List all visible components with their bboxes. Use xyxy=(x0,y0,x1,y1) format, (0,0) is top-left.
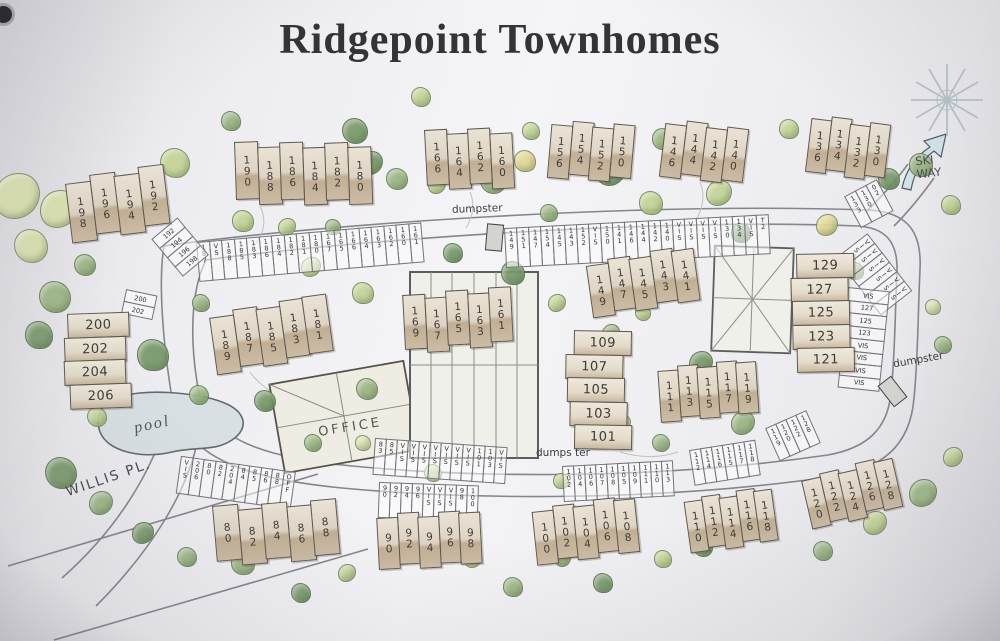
unit-number: 129 xyxy=(812,258,839,273)
unit-number: 204 xyxy=(82,364,109,380)
unit-number: 111 xyxy=(663,379,676,413)
unit-125: 125 xyxy=(792,300,850,326)
stall-label: 123 xyxy=(858,329,871,338)
tree xyxy=(522,122,540,140)
stall-label: 107 xyxy=(598,465,606,486)
stall-label: 140 xyxy=(663,220,671,241)
unit-number: 84 xyxy=(270,519,282,542)
dumpster xyxy=(485,223,504,251)
stall-label: 188 xyxy=(224,240,232,261)
ski-way-label: SKI WAY xyxy=(915,153,942,182)
stall-label: VIS xyxy=(409,441,417,462)
unit-123: 123 xyxy=(792,323,850,349)
stall-label: 103 xyxy=(486,447,494,468)
unit-number: 103 xyxy=(585,406,612,421)
tree xyxy=(14,229,48,263)
unit-121: 121 xyxy=(797,347,855,373)
stall-label: 165 xyxy=(337,230,345,251)
unit-number: 94 xyxy=(424,531,436,554)
stall-label: OFF xyxy=(283,472,292,493)
unit-number: 117 xyxy=(721,370,734,404)
unit-number: 147 xyxy=(614,267,629,301)
unit-number: 185 xyxy=(264,319,279,353)
stall-label: 85 xyxy=(250,467,258,482)
stall-label: 92 xyxy=(392,483,399,497)
unit-number: 114 xyxy=(724,505,739,539)
stall-label: 202 xyxy=(131,305,145,315)
unit-number: 196 xyxy=(98,186,112,220)
tree xyxy=(291,583,311,603)
stall-label: 125 xyxy=(859,316,872,325)
tree xyxy=(25,321,53,349)
unit-number: 156 xyxy=(553,135,566,169)
unit-119: 119 xyxy=(735,361,760,414)
unit-number: 143 xyxy=(656,259,671,293)
dumpster-label-top: dumpster xyxy=(452,202,503,216)
stall-label: 142 xyxy=(651,221,659,242)
unit-number: 106 xyxy=(599,508,613,542)
unit-number: 108 xyxy=(620,509,634,543)
stall-label: 182 xyxy=(287,235,295,256)
parking-stall-T2: T2 xyxy=(756,214,771,255)
stall-label: 143 xyxy=(567,225,575,246)
stall-label: 184 xyxy=(274,236,282,257)
unit-number: 107 xyxy=(581,359,608,374)
stall-label: VIS xyxy=(863,291,874,300)
stall-label: VIS xyxy=(398,441,406,462)
snowflake-doodle xyxy=(911,64,983,136)
unit-number: 86 xyxy=(295,522,307,545)
unit-number: 110 xyxy=(689,509,704,543)
unit-number: 165 xyxy=(452,301,464,335)
unit-number: 181 xyxy=(310,307,325,341)
stall-label: 164 xyxy=(361,228,369,249)
unit-number: 132 xyxy=(850,135,864,169)
stall-label: 151 xyxy=(519,228,527,249)
tree xyxy=(189,385,209,405)
stall-label: 82 xyxy=(216,462,224,477)
stall-label: VIS xyxy=(436,485,443,506)
building-109: 109107105103101 xyxy=(564,330,624,448)
stall-label: VIS xyxy=(464,445,472,466)
unit-number: 98 xyxy=(465,527,477,550)
stall-label: 85 xyxy=(388,440,395,454)
stall-label: 186 xyxy=(262,237,270,258)
stall-label: 163 xyxy=(374,227,382,248)
building-110: 110112114116118 xyxy=(683,486,777,550)
stall-label: 84 xyxy=(239,465,247,480)
stall-label: 162 xyxy=(386,226,394,247)
tree xyxy=(514,150,536,172)
unit-number: 169 xyxy=(409,305,421,339)
unit-number: 102 xyxy=(558,515,572,549)
parking-stall-VIS: VIS xyxy=(493,446,508,484)
unit-number: 192 xyxy=(146,178,160,212)
unit-number: 183 xyxy=(287,311,302,345)
stall-label: 141 xyxy=(615,223,623,244)
tree xyxy=(232,210,254,232)
tree xyxy=(39,281,71,313)
stall-label: 145 xyxy=(555,226,563,247)
unit-number: 116 xyxy=(741,498,756,532)
stall-label: VIS xyxy=(447,485,454,506)
building-166: 166164162160 xyxy=(424,125,513,185)
stall-label: 96 xyxy=(414,484,421,498)
stall-label: 144 xyxy=(639,222,647,243)
unit-number: 82 xyxy=(246,525,258,548)
unit-number: 119 xyxy=(741,371,754,405)
tree xyxy=(221,111,241,131)
stall-label: 127 xyxy=(860,304,873,313)
tree xyxy=(925,299,941,315)
unit-number: 130 xyxy=(870,133,884,167)
stall-label: 83 xyxy=(377,439,384,453)
stall-label: 105 xyxy=(620,464,628,485)
unit-number: 167 xyxy=(431,308,443,342)
unit-88: 88 xyxy=(310,498,341,556)
unit-number: 121 xyxy=(813,352,840,367)
unit-105: 105 xyxy=(567,377,625,403)
unit-number: 184 xyxy=(309,160,321,193)
stall-label: 106 xyxy=(587,465,595,486)
stall-label: 167 xyxy=(324,231,332,252)
unit-number: 162 xyxy=(474,139,486,173)
stall-label: VS xyxy=(212,241,220,256)
unit-number: 190 xyxy=(241,154,253,187)
stall-label: 111 xyxy=(642,463,650,484)
tree xyxy=(779,119,799,139)
unit-number: 166 xyxy=(431,141,443,175)
unit-number: 150 xyxy=(615,134,628,168)
unit-150: 150 xyxy=(609,123,636,179)
stall-label: 130 xyxy=(723,217,731,238)
tree xyxy=(160,148,190,178)
unit-number: 113 xyxy=(682,374,695,408)
stall-label: 104 xyxy=(576,466,584,487)
tree xyxy=(941,195,961,215)
building-190: 190188186184182180 xyxy=(234,137,371,200)
unit-number: 146 xyxy=(666,134,680,168)
tree xyxy=(356,378,378,400)
stall-label: 134 xyxy=(735,217,743,238)
unit-number: 145 xyxy=(636,267,651,301)
stall-label: VIS xyxy=(855,366,866,375)
unit-number: 144 xyxy=(687,132,701,166)
stall-label: VIS xyxy=(675,220,683,241)
unit-number: 105 xyxy=(583,382,610,397)
unit-number: 90 xyxy=(383,532,395,555)
unit-98: 98 xyxy=(458,512,483,565)
unit-number: 189 xyxy=(218,328,233,362)
stall-label: 100 xyxy=(469,486,476,507)
unit-103: 103 xyxy=(569,401,627,427)
unit-number: 152 xyxy=(594,138,607,172)
unit-206: 206 xyxy=(69,382,132,409)
stall-label: VIS xyxy=(856,354,867,363)
unit-number: 141 xyxy=(678,259,693,293)
unit-160: 160 xyxy=(489,132,515,189)
unit-number: 160 xyxy=(496,144,508,178)
tree xyxy=(254,390,276,412)
stall-label: 80 xyxy=(205,460,213,475)
stall-label: VIS xyxy=(431,443,439,464)
building-136: 136134132130 xyxy=(805,114,889,177)
unit-161: 161 xyxy=(488,286,514,342)
unit-number: 125 xyxy=(808,305,835,320)
unit-number: 109 xyxy=(589,335,616,350)
tree xyxy=(540,204,558,222)
stall-label: 86 xyxy=(262,468,270,483)
stall-label: 98 xyxy=(458,486,465,500)
stall-label: 150 xyxy=(603,224,611,245)
stall-label: VIS xyxy=(853,378,864,387)
stall-label: 113 xyxy=(664,461,672,482)
stall-label: T2 xyxy=(759,215,766,229)
tree xyxy=(411,87,431,107)
tennis-court-right xyxy=(711,246,794,354)
unit-number: 92 xyxy=(403,527,415,550)
stall-label: 152 xyxy=(579,225,587,246)
unit-number: 112 xyxy=(706,504,721,538)
tree xyxy=(593,573,613,593)
stall-label: VIS xyxy=(747,216,755,237)
building-200: 200202204206 xyxy=(62,312,127,408)
stall-label: 161 xyxy=(411,224,419,245)
building-100: 100102104106108 xyxy=(531,495,639,559)
unit-number: 115 xyxy=(702,376,715,410)
building-198: 198196194192 xyxy=(64,164,169,235)
unit-number: 118 xyxy=(758,499,773,533)
stall-label: 146 xyxy=(627,222,635,243)
stall-label: 102 xyxy=(565,467,573,488)
building-146: 146144142140 xyxy=(659,118,747,182)
tree xyxy=(87,407,107,427)
site-map: 187VS18818518318618418218118016716516616… xyxy=(0,0,1000,641)
unit-number: 206 xyxy=(87,388,114,404)
unit-127: 127 xyxy=(790,276,848,302)
tree xyxy=(137,339,169,371)
stall-label: 109 xyxy=(631,463,639,484)
unit-number: 96 xyxy=(444,526,456,549)
stall-label: 147 xyxy=(531,227,539,248)
unit-number: 140 xyxy=(727,138,741,172)
stall-label: 94 xyxy=(403,484,410,498)
tree xyxy=(503,577,523,597)
tree xyxy=(177,547,197,567)
unit-number: 198 xyxy=(74,195,88,229)
stall-label: 166 xyxy=(349,229,357,250)
building-156: 156154152150 xyxy=(547,118,633,179)
unit-number: 187 xyxy=(241,320,256,354)
stall-label: 118 xyxy=(746,441,756,462)
tree xyxy=(639,191,663,215)
stall-label: 154 xyxy=(543,227,551,248)
tree xyxy=(352,282,374,304)
page-title: Ridgepoint Townhomes xyxy=(0,16,1000,64)
stall-label: 160 xyxy=(399,225,407,246)
building-111: 111113115117119 xyxy=(657,359,758,418)
stall-label: VIS xyxy=(420,442,428,463)
building-80: 8082848688 xyxy=(212,495,339,561)
building-129: 129127125123121 xyxy=(790,253,850,371)
stall-label: 108 xyxy=(609,464,617,485)
stall-label: 02 xyxy=(869,182,881,197)
stall-label: 180 xyxy=(312,232,320,253)
unit-number: 100 xyxy=(538,521,552,555)
tree xyxy=(386,168,408,190)
stall-label: VIS xyxy=(857,341,868,350)
unit-107: 107 xyxy=(565,353,623,379)
stall-label: VIS xyxy=(497,448,505,469)
unit-180: 180 xyxy=(347,146,373,205)
unit-number: 142 xyxy=(707,138,721,172)
unit-129: 129 xyxy=(796,253,854,279)
unit-number: 149 xyxy=(593,274,608,308)
stall-label: VIS xyxy=(687,219,695,240)
stall-label: VIS xyxy=(453,444,461,465)
unit-number: 202 xyxy=(82,341,109,357)
tree xyxy=(654,550,672,568)
unit-number: 134 xyxy=(831,127,845,161)
stall-label: VIS xyxy=(711,218,719,239)
unit-number: 123 xyxy=(808,329,835,344)
stall-label: 149 xyxy=(507,229,515,250)
stall-label: 183 xyxy=(249,238,257,259)
stall-label: 90 xyxy=(381,483,388,497)
dumpster-label-bottom: dumps ter xyxy=(536,447,590,459)
site-map-photo: Ridgepoint Townhomes xyxy=(0,0,1000,641)
unit-number: 136 xyxy=(811,129,825,163)
unit-number: 182 xyxy=(331,155,343,188)
stall-label: 185 xyxy=(237,239,245,260)
stall-label: 88 xyxy=(273,470,281,485)
building-90: 9092949698 xyxy=(376,509,481,566)
unit-number: 163 xyxy=(473,304,485,338)
building-169: 169167165163161 xyxy=(402,286,512,347)
unit-109: 109 xyxy=(574,330,632,356)
unit-number: 164 xyxy=(453,144,465,178)
stall-label: 110 xyxy=(653,462,661,483)
unit-number: 127 xyxy=(806,282,833,297)
stall-label: VIS xyxy=(699,218,707,239)
unit-number: 200 xyxy=(85,317,112,333)
unit-number: 88 xyxy=(319,516,331,539)
stall-label: 181 xyxy=(299,233,307,254)
unit-number: 154 xyxy=(574,132,587,166)
unit-number: 101 xyxy=(590,429,617,444)
unit-number: 104 xyxy=(579,515,593,549)
unit-number: 188 xyxy=(264,159,276,192)
tree xyxy=(443,243,463,263)
tree xyxy=(74,254,96,276)
unit-number: 186 xyxy=(286,154,298,187)
stall-label: 101 xyxy=(475,446,483,467)
stall-label: VIS xyxy=(425,485,432,506)
tree xyxy=(355,435,371,451)
unit-number: 80 xyxy=(221,521,233,544)
tree xyxy=(652,434,670,452)
parking-stall-113: 113 xyxy=(661,460,675,497)
unit-number: 180 xyxy=(354,159,366,192)
tree xyxy=(813,541,833,561)
unit-number: 128 xyxy=(879,467,897,502)
unit-number: 161 xyxy=(495,298,507,332)
stall-label: VIS xyxy=(442,444,450,465)
stall-label: VIS xyxy=(591,224,599,245)
unit-number: 194 xyxy=(123,187,137,221)
